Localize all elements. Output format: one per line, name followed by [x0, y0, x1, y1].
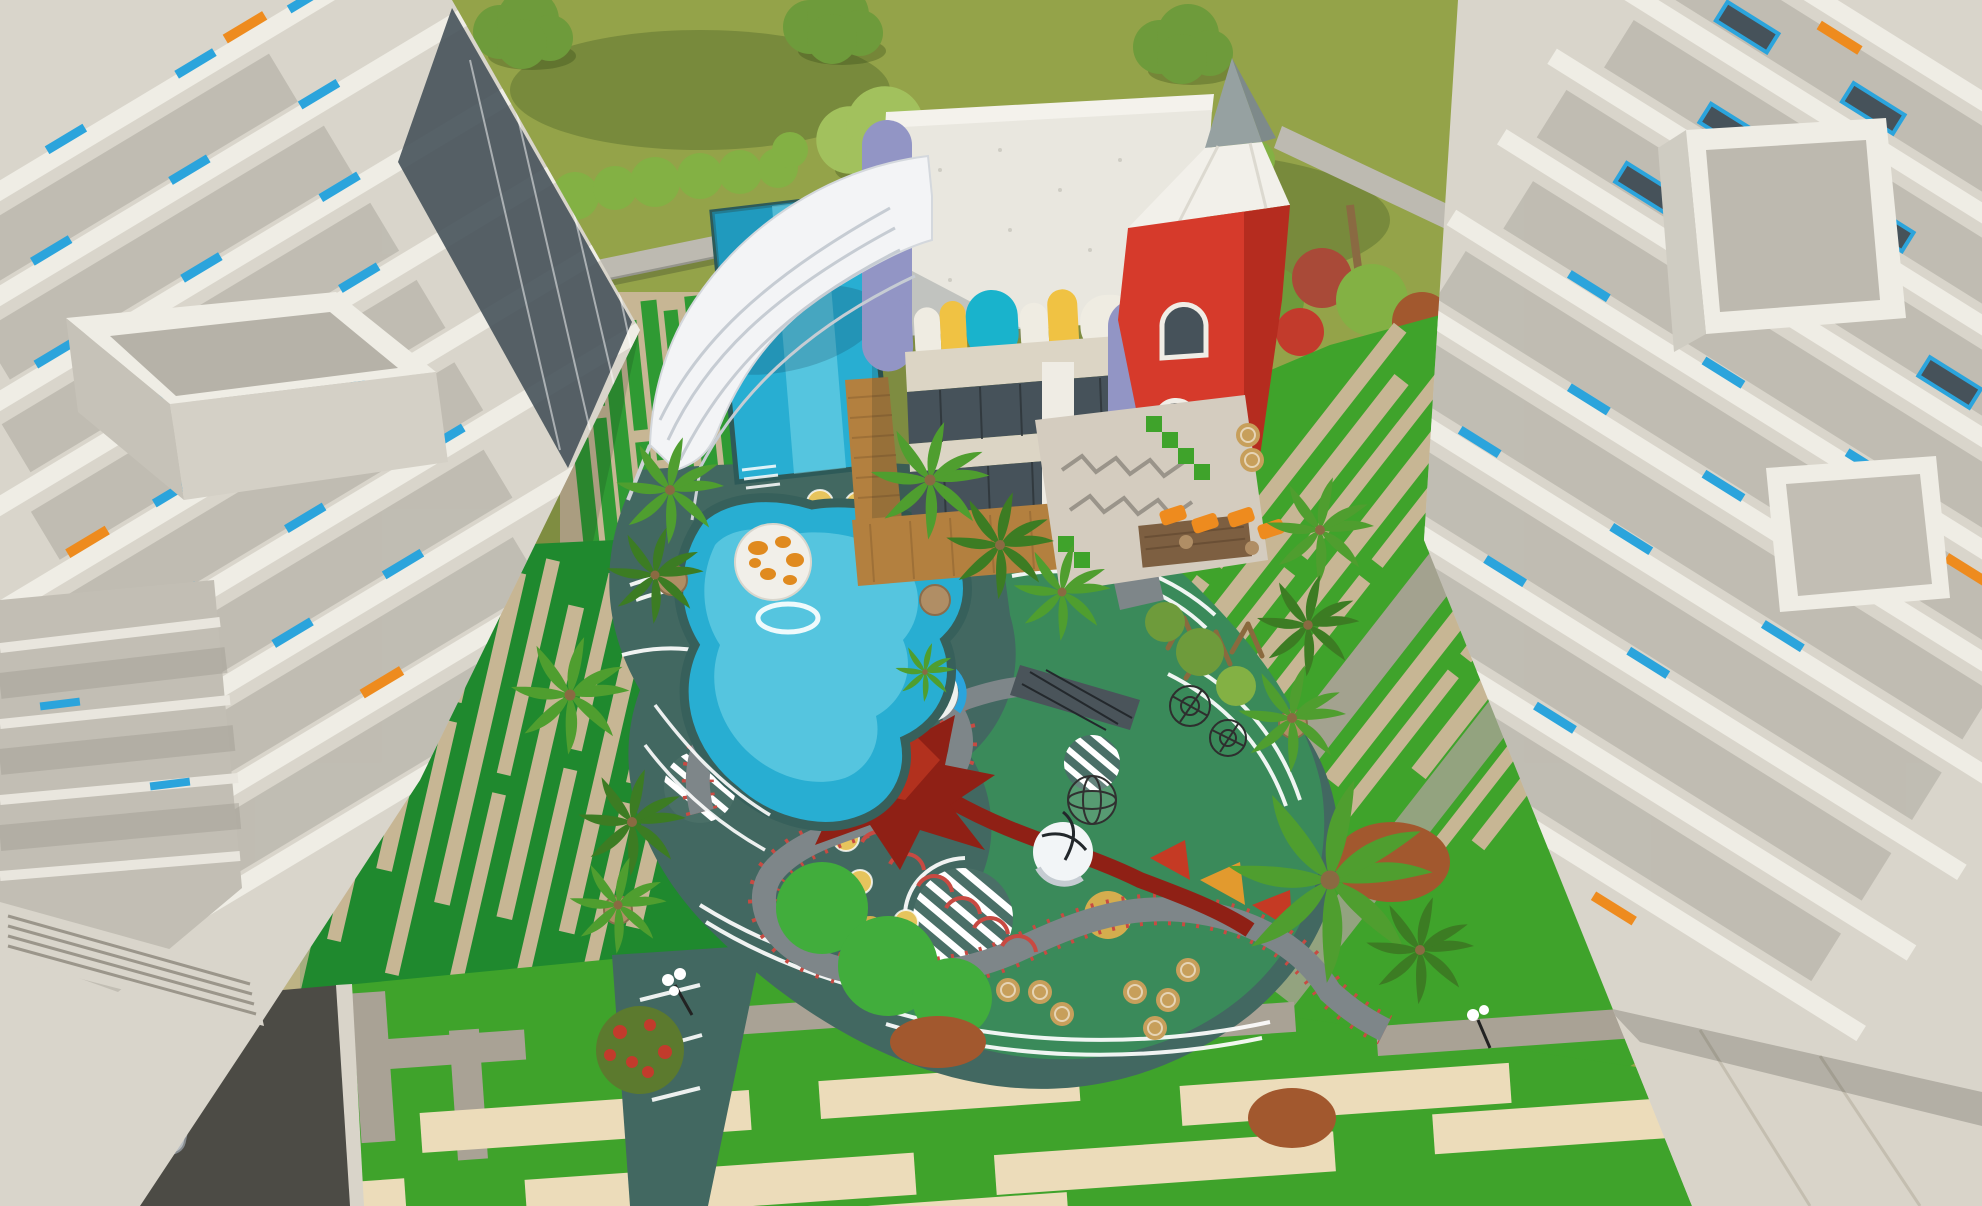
wood-stool [1050, 1002, 1074, 1026]
bush [1248, 1088, 1336, 1148]
bush [1145, 602, 1185, 642]
pencil-window [1162, 304, 1206, 358]
wood-stool [1236, 423, 1260, 447]
side-table [1179, 535, 1193, 549]
bush [1216, 666, 1256, 706]
render-canvas [0, 0, 1982, 1206]
protruding-balcony [1658, 118, 1906, 352]
wood-stool [1176, 958, 1200, 982]
flower-bush [596, 1006, 684, 1094]
balcony-floor [1786, 474, 1932, 596]
aerial-render [0, 0, 1982, 1206]
wood-stool [1123, 980, 1147, 1004]
side-table [1245, 541, 1259, 555]
bush [890, 1016, 986, 1068]
protruding-balcony [1766, 456, 1950, 612]
wood-stool [1143, 1016, 1167, 1040]
flower-bush [1276, 308, 1324, 356]
wood-stool [1240, 448, 1264, 472]
wood-stool [1156, 988, 1180, 1012]
balcony-floor [1706, 140, 1880, 312]
bush [1176, 628, 1224, 676]
wood-stool [1028, 980, 1052, 1004]
wood-stool [996, 978, 1020, 1002]
wire-climber-dome [1068, 776, 1116, 824]
right-plaza [1035, 395, 1286, 592]
